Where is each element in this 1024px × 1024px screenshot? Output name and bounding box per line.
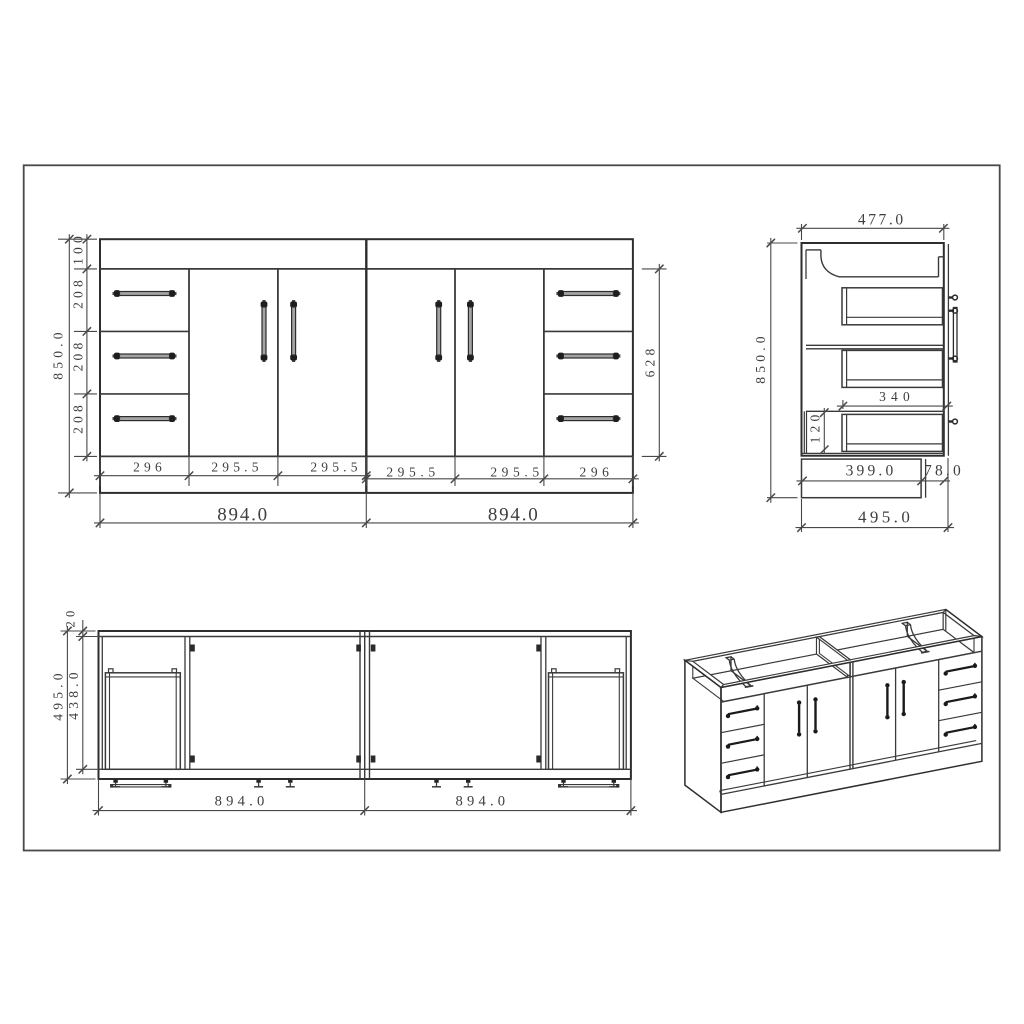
svg-text:100: 100 <box>71 232 86 265</box>
svg-text:208: 208 <box>71 276 86 309</box>
svg-text:295.5: 295.5 <box>386 464 439 479</box>
svg-text:295.5: 295.5 <box>211 459 262 474</box>
svg-text:295.5: 295.5 <box>490 464 543 479</box>
svg-text:850.0: 850.0 <box>753 332 768 383</box>
svg-text:495.0: 495.0 <box>50 669 65 720</box>
svg-text:495.0: 495.0 <box>858 508 913 527</box>
svg-text:295.5: 295.5 <box>310 459 361 474</box>
svg-text:628: 628 <box>643 345 658 378</box>
svg-text:208: 208 <box>71 401 86 434</box>
svg-text:894.0: 894.0 <box>488 505 540 526</box>
svg-text:296: 296 <box>579 464 613 479</box>
svg-text:894.0: 894.0 <box>455 793 509 809</box>
svg-text:208: 208 <box>71 339 86 372</box>
svg-text:120: 120 <box>808 411 823 444</box>
svg-text:399.0: 399.0 <box>846 463 897 480</box>
svg-text:894.0: 894.0 <box>215 793 269 809</box>
svg-text:850.0: 850.0 <box>51 328 66 379</box>
svg-text:894.0: 894.0 <box>217 505 269 526</box>
svg-text:78.0: 78.0 <box>924 463 964 480</box>
svg-text:296: 296 <box>133 459 166 474</box>
svg-text:20: 20 <box>63 607 77 628</box>
svg-text:438.0: 438.0 <box>66 668 81 719</box>
svg-text:340: 340 <box>879 389 915 404</box>
svg-text:477.0: 477.0 <box>858 211 906 228</box>
